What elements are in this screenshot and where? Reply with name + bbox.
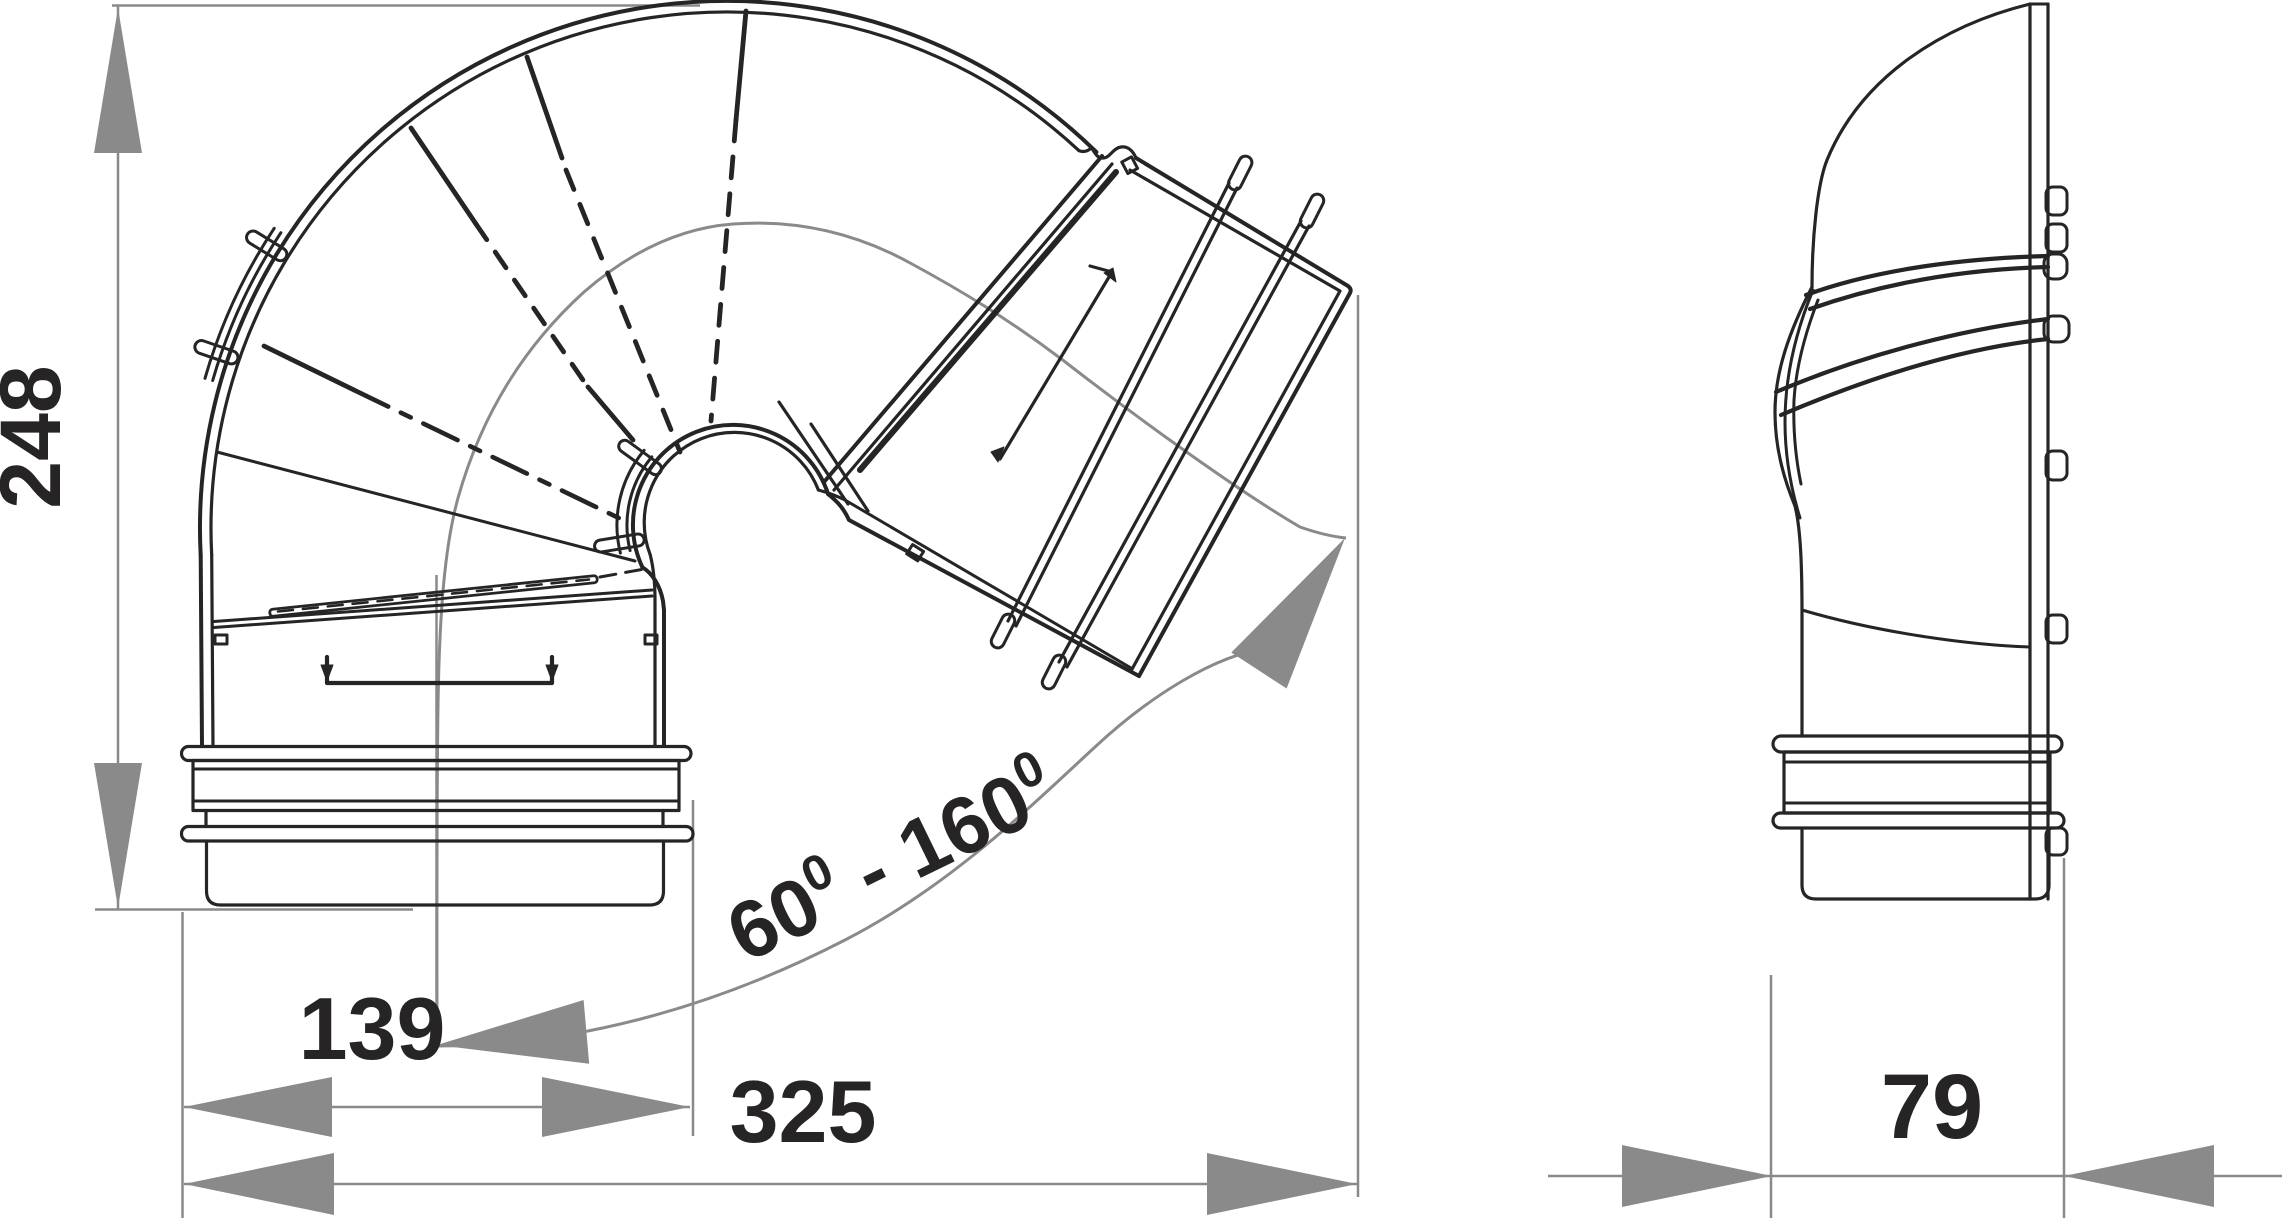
svg-text:139: 139 — [299, 979, 446, 1078]
svg-text:248: 248 — [0, 365, 79, 509]
svg-text:325: 325 — [730, 1062, 877, 1161]
svg-text:79: 79 — [1881, 1056, 1983, 1158]
